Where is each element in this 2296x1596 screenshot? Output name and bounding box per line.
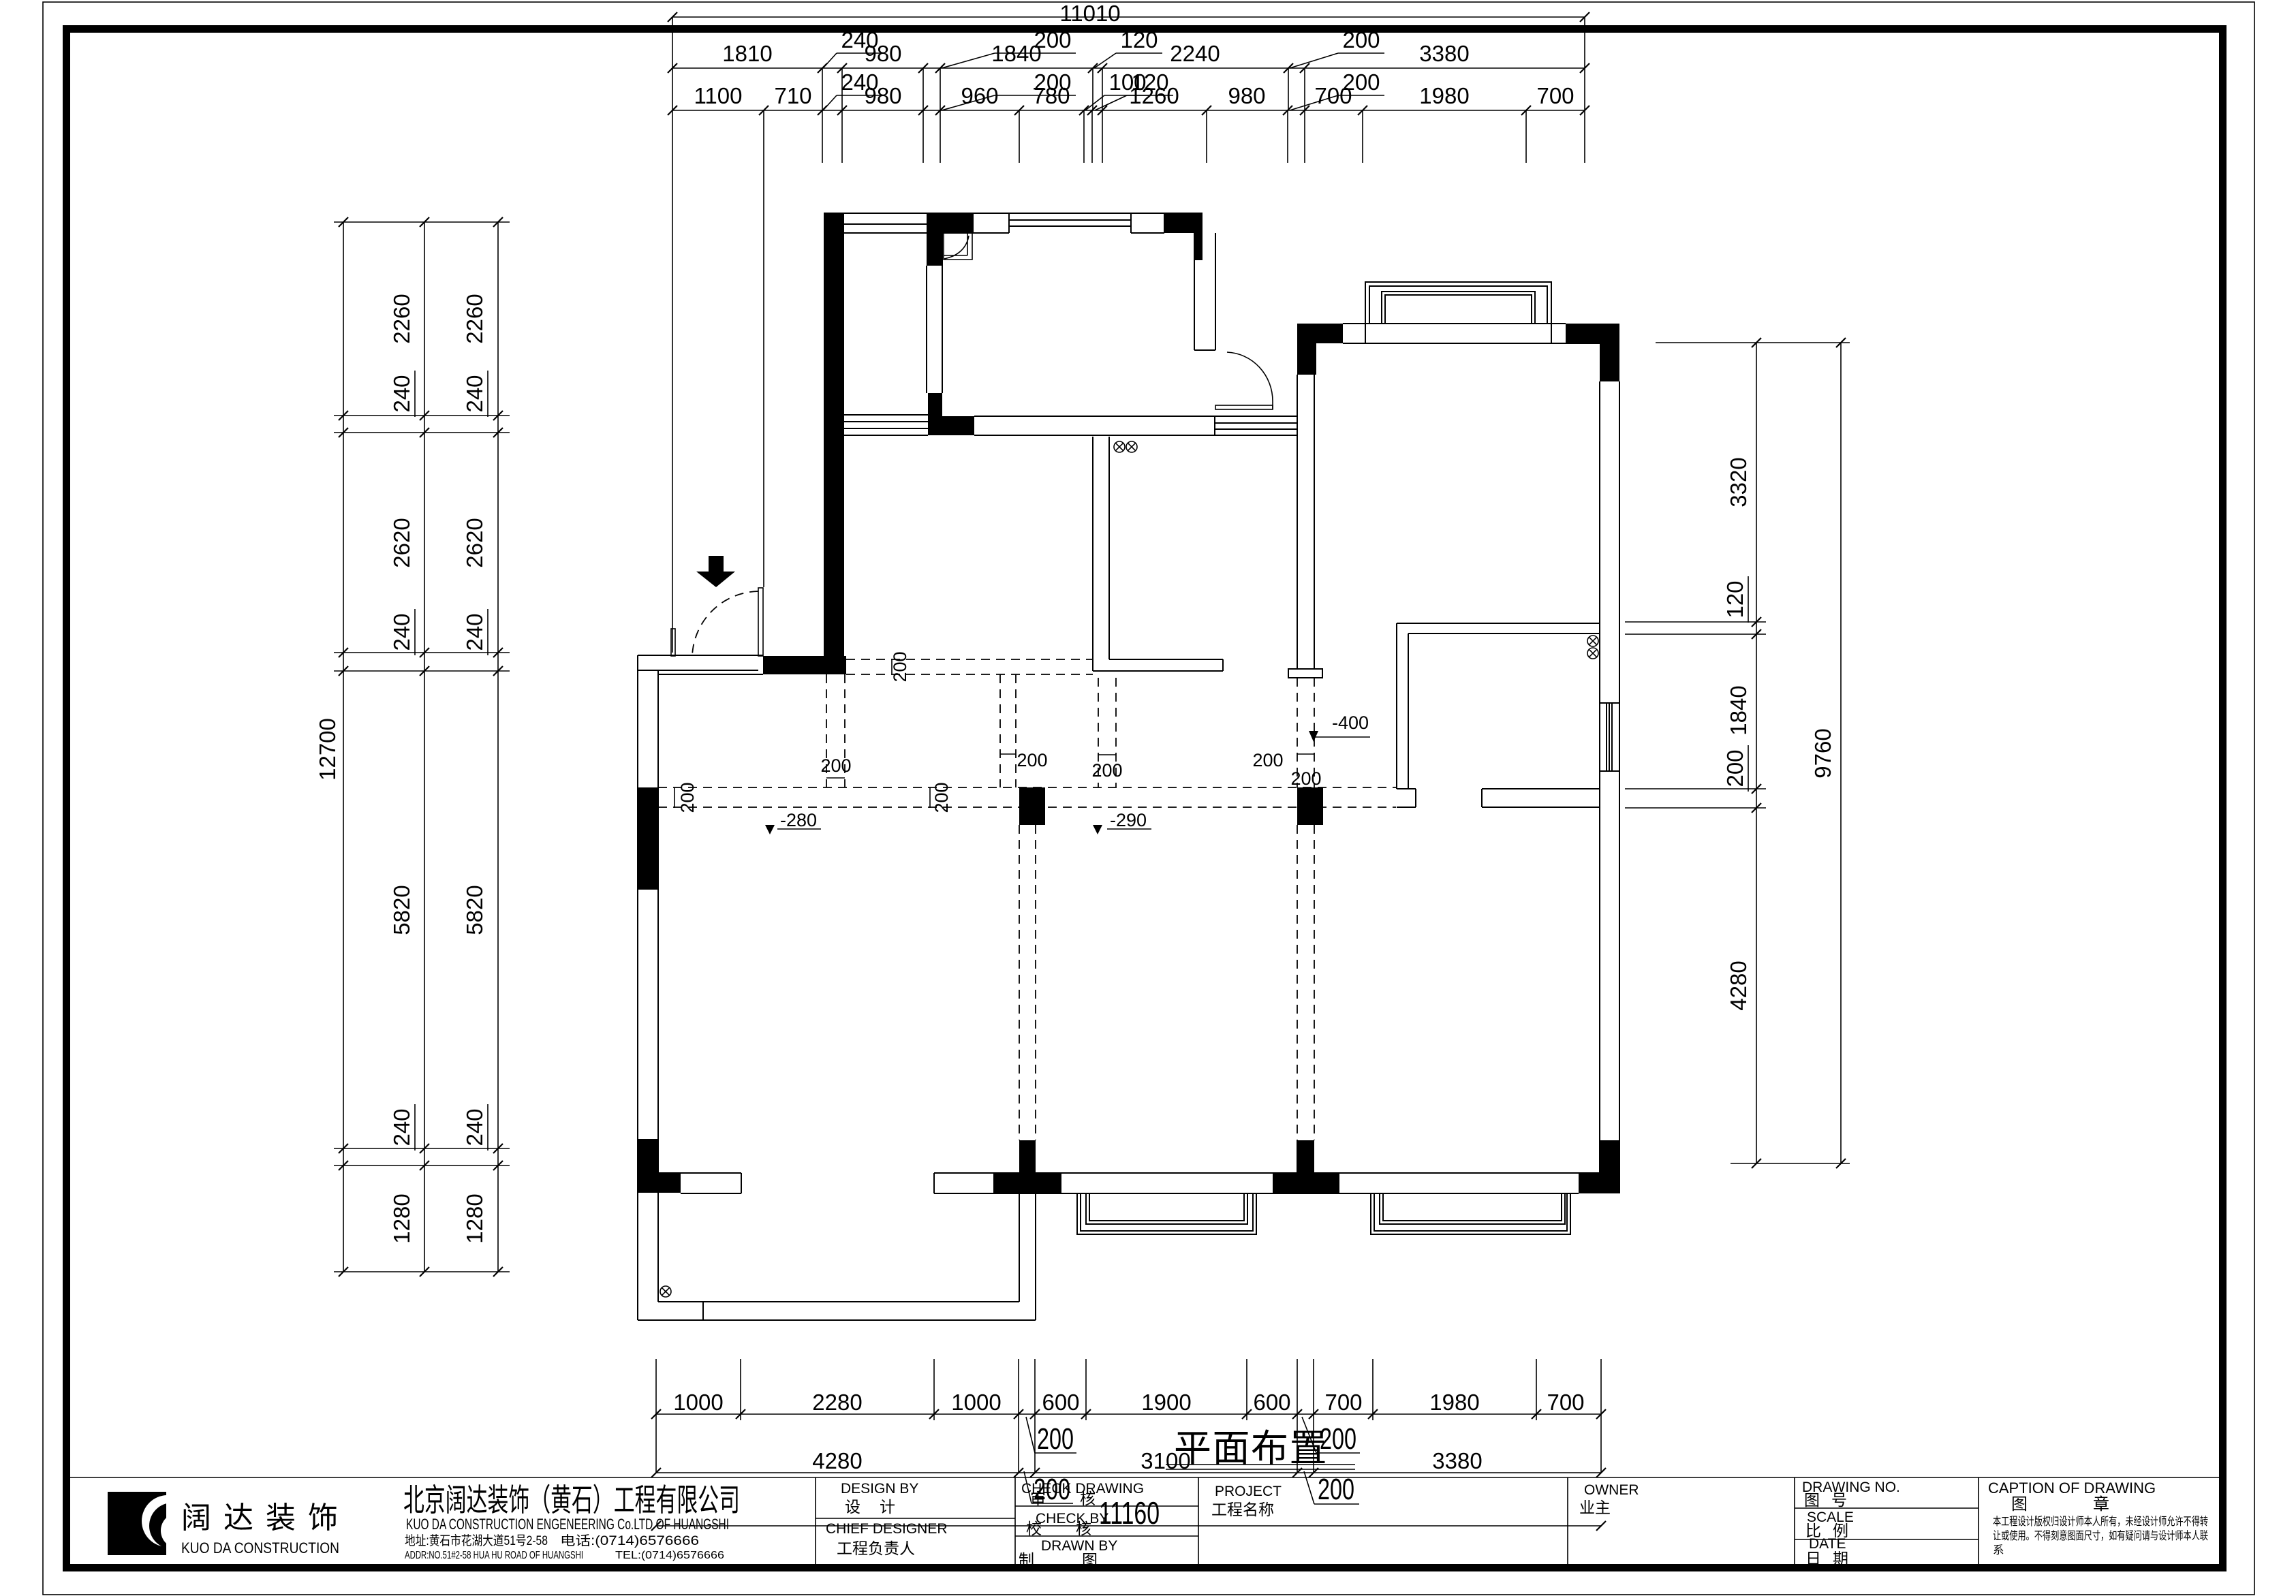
svg-text:工程名称: 工程名称 (1211, 1501, 1274, 1518)
svg-text:工程负责人: 工程负责人 (837, 1539, 915, 1557)
svg-text:日期: 日期 (1805, 1550, 1860, 1567)
svg-text:200: 200 (890, 651, 910, 682)
svg-text:KUO DA CONSTRUCTION: KUO DA CONSTRUCTION (181, 1539, 339, 1556)
svg-text:1980: 1980 (1419, 83, 1469, 108)
svg-text:600: 600 (1253, 1390, 1290, 1415)
svg-text:700: 700 (1547, 1390, 1584, 1415)
svg-text:4280: 4280 (812, 1448, 862, 1473)
svg-text:1900: 1900 (1141, 1390, 1191, 1415)
svg-text:KUO DA CONSTRUCTION ENGENEERIN: KUO DA CONSTRUCTION ENGENEERING Co.LTD O… (406, 1516, 729, 1533)
svg-text:TEL:(0714)6576666: TEL:(0714)6576666 (615, 1550, 724, 1561)
svg-text:章: 章 (2093, 1495, 2109, 1514)
svg-text:200: 200 (1290, 768, 1321, 789)
svg-text:阔达装饰: 阔达装饰 (181, 1501, 350, 1535)
svg-text:-280: -280 (780, 810, 817, 830)
svg-text:3380: 3380 (1419, 41, 1469, 66)
svg-text:2620: 2620 (389, 518, 414, 567)
svg-text:北京阔达装饰（黄石）工程有限公司: 北京阔达装饰（黄石）工程有限公司 (403, 1482, 740, 1518)
svg-text:240: 240 (389, 1108, 414, 1146)
svg-text:OWNER: OWNER (1584, 1482, 1639, 1498)
svg-text:地址:黄石市花湖大道51号2-58: 地址:黄石市花湖大道51号2-58 (405, 1533, 548, 1548)
svg-text:1100: 1100 (694, 83, 743, 108)
svg-text:200: 200 (931, 782, 952, 813)
svg-text:-290: -290 (1110, 810, 1147, 830)
svg-text:240: 240 (389, 613, 414, 651)
svg-text:1980: 1980 (1429, 1390, 1479, 1415)
svg-text:1810: 1810 (722, 41, 772, 66)
svg-text:2240: 2240 (1170, 41, 1220, 66)
svg-text:ADDR:NO.51#2-58 HUA HU ROAD OF: ADDR:NO.51#2-58 HUA HU ROAD OF HUANGSHI (405, 1550, 583, 1561)
svg-text:12700: 12700 (315, 718, 340, 781)
svg-text:200: 200 (1034, 69, 1071, 95)
svg-text:200: 200 (1252, 750, 1283, 770)
svg-text:3320: 3320 (1726, 457, 1751, 507)
svg-text:700: 700 (1536, 83, 1574, 108)
svg-text:PROJECT: PROJECT (1215, 1484, 1282, 1499)
svg-text:11010: 11010 (1059, 1, 1120, 26)
svg-text:3380: 3380 (1432, 1448, 1482, 1473)
svg-text:本工程设计版权归设计师本人所有，未经设计师允许不得转: 本工程设计版权归设计师本人所有，未经设计师允许不得转 (1993, 1515, 2208, 1528)
svg-text:240: 240 (841, 69, 878, 95)
svg-text:5820: 5820 (462, 885, 487, 935)
svg-text:制图: 制图 (1019, 1551, 1145, 1569)
svg-text:200: 200 (820, 755, 851, 776)
svg-text:1280: 1280 (389, 1193, 414, 1243)
svg-text:审核: 审核 (1030, 1490, 1130, 1507)
svg-text:2620: 2620 (462, 518, 487, 567)
svg-text:980: 980 (1228, 83, 1265, 108)
svg-text:-400: -400 (1332, 713, 1369, 733)
svg-text:600: 600 (1042, 1390, 1079, 1415)
svg-text:业主: 业主 (1579, 1499, 1611, 1516)
svg-text:200: 200 (1017, 750, 1047, 770)
svg-text:240: 240 (462, 375, 487, 412)
svg-text:5820: 5820 (389, 885, 414, 935)
svg-text:200: 200 (677, 782, 698, 813)
svg-text:2280: 2280 (812, 1390, 862, 1415)
svg-text:200: 200 (1037, 1422, 1074, 1456)
svg-text:240: 240 (462, 613, 487, 651)
svg-text:700: 700 (1324, 1390, 1362, 1415)
svg-text:200: 200 (1342, 69, 1380, 95)
svg-text:CAPTION OF DRAWING: CAPTION OF DRAWING (1988, 1480, 2156, 1497)
svg-text:240: 240 (841, 27, 878, 52)
svg-text:图号: 图号 (1804, 1491, 1859, 1509)
svg-text:让或使用。不得刻意图面尺寸，如有疑问请与设计师本人联: 让或使用。不得刻意图面尺寸，如有疑问请与设计师本人联 (1993, 1529, 2208, 1542)
svg-text:240: 240 (389, 375, 414, 412)
svg-text:CHIEF DESIGNER: CHIEF DESIGNER (826, 1521, 948, 1537)
svg-text:设计: 设计 (845, 1498, 914, 1516)
svg-text:电话:(0714)6576666: 电话:(0714)6576666 (560, 1533, 699, 1548)
svg-text:200: 200 (1722, 749, 1748, 787)
svg-text:1840: 1840 (1726, 685, 1751, 735)
svg-text:校核: 校核 (1026, 1520, 1126, 1537)
svg-text:710: 710 (774, 83, 811, 108)
svg-text:200: 200 (1034, 27, 1071, 52)
svg-text:图: 图 (2011, 1495, 2028, 1514)
svg-text:200: 200 (1091, 760, 1122, 781)
svg-text:120: 120 (1131, 69, 1168, 95)
svg-text:2260: 2260 (389, 294, 414, 343)
svg-text:系: 系 (1993, 1544, 2004, 1556)
svg-text:120: 120 (1722, 580, 1748, 618)
svg-text:2260: 2260 (462, 294, 487, 343)
svg-text:1280: 1280 (462, 1193, 487, 1243)
svg-text:9760: 9760 (1810, 728, 1835, 778)
svg-text:200: 200 (1342, 27, 1380, 52)
svg-text:DESIGN BY: DESIGN BY (841, 1481, 918, 1497)
svg-text:1000: 1000 (673, 1390, 723, 1415)
svg-text:240: 240 (462, 1108, 487, 1146)
svg-text:平面布置: 平面布置 (1174, 1427, 1328, 1469)
svg-text:120: 120 (1120, 27, 1158, 52)
svg-text:1000: 1000 (951, 1390, 1001, 1415)
svg-text:4280: 4280 (1726, 960, 1751, 1010)
